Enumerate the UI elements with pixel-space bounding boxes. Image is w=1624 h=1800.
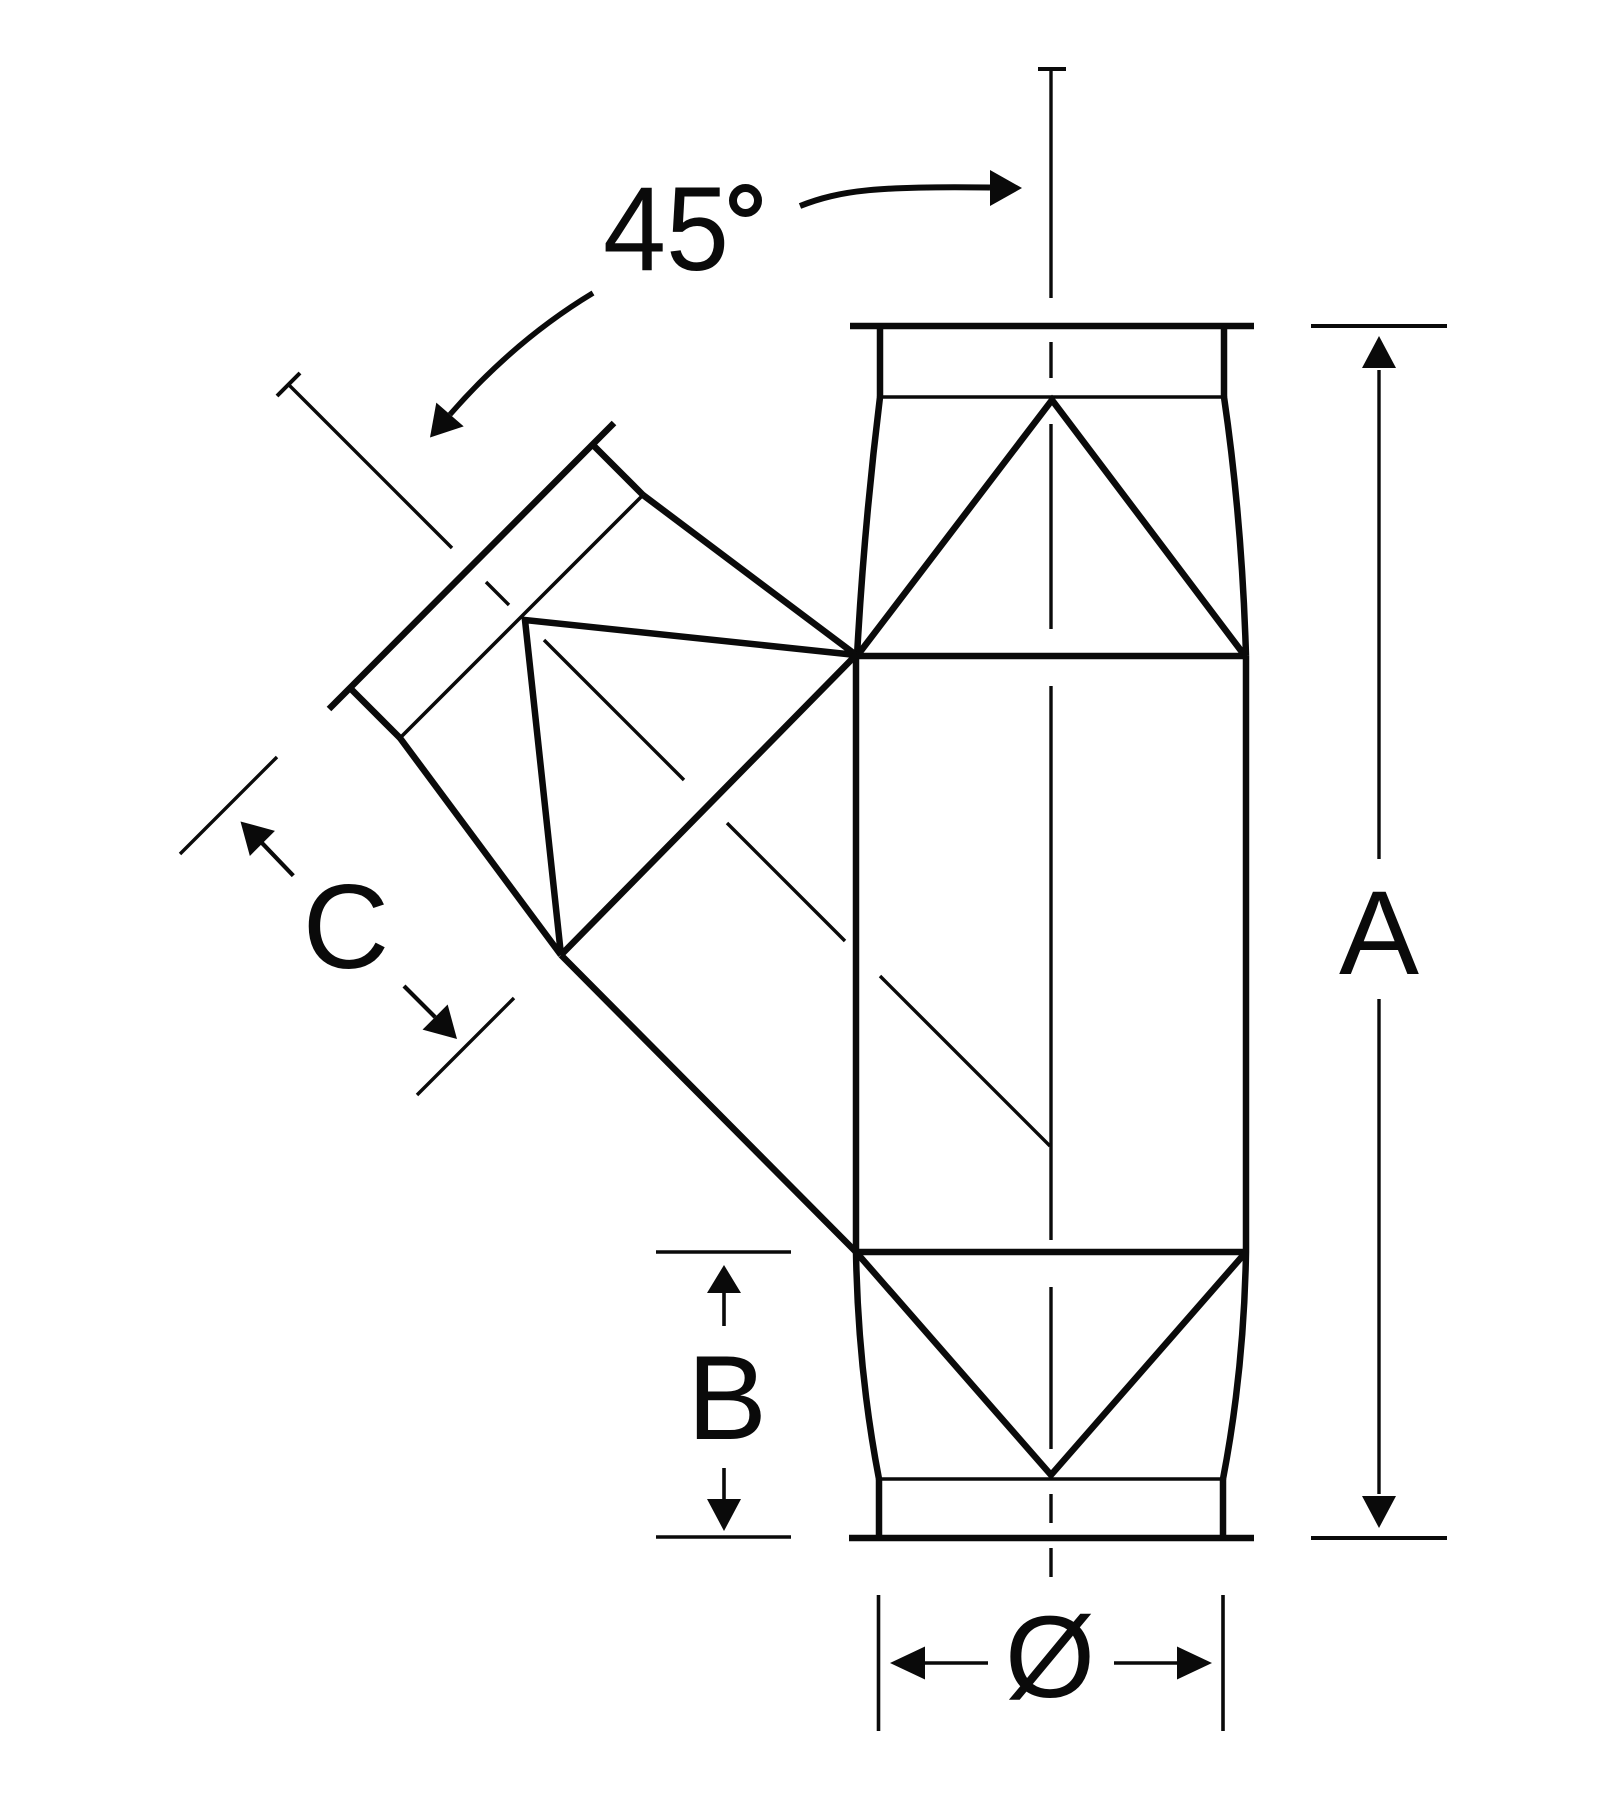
svg-text:B: B [687, 1331, 767, 1465]
svg-text:45: 45 [603, 162, 729, 296]
svg-text:A: A [1339, 866, 1419, 1000]
svg-text:C: C [303, 860, 390, 994]
svg-text:Ø: Ø [1005, 1592, 1095, 1722]
